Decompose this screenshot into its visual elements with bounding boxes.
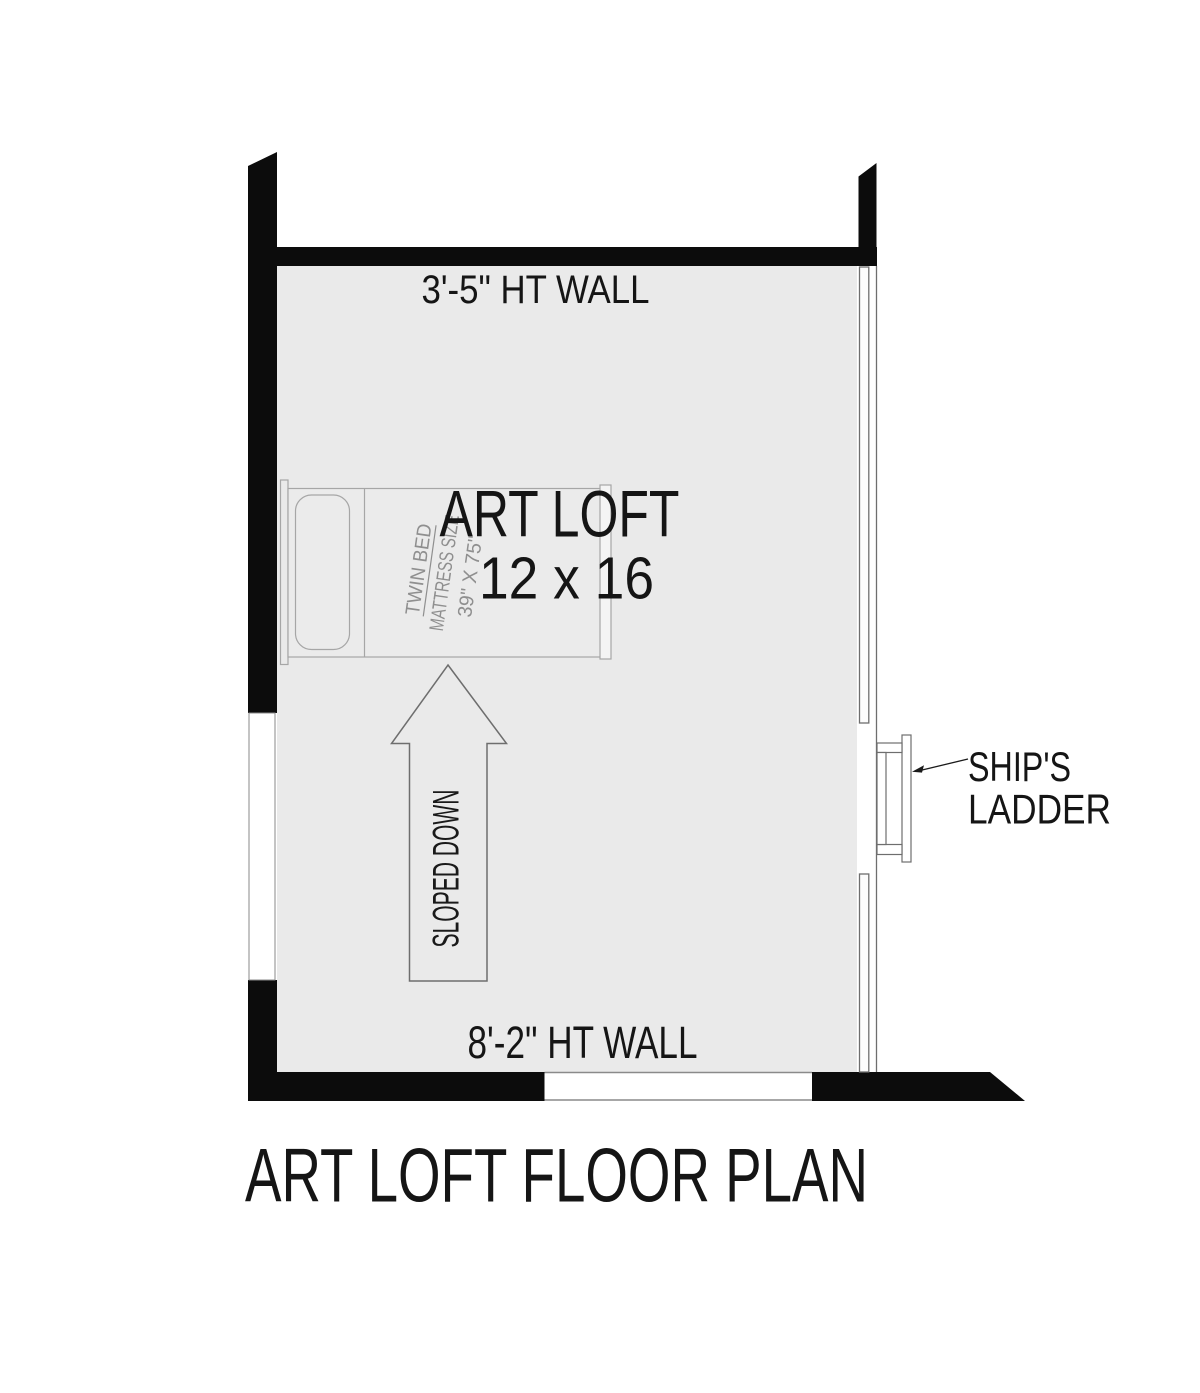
svg-text:SLOPED DOWN: SLOPED DOWN	[426, 790, 467, 948]
svg-text:12 x 16: 12 x 16	[479, 546, 654, 612]
svg-text:3'-5" HT WALL: 3'-5" HT WALL	[422, 268, 650, 312]
svg-text:8'-2" HT WALL: 8'-2" HT WALL	[468, 1017, 698, 1068]
svg-text:ART LOFT FLOOR PLAN: ART LOFT FLOOR PLAN	[245, 1134, 868, 1219]
svg-text:ART LOFT: ART LOFT	[440, 477, 680, 551]
svg-text:SHIP'S: SHIP'S	[968, 743, 1071, 790]
svg-text:LADDER: LADDER	[968, 786, 1111, 833]
